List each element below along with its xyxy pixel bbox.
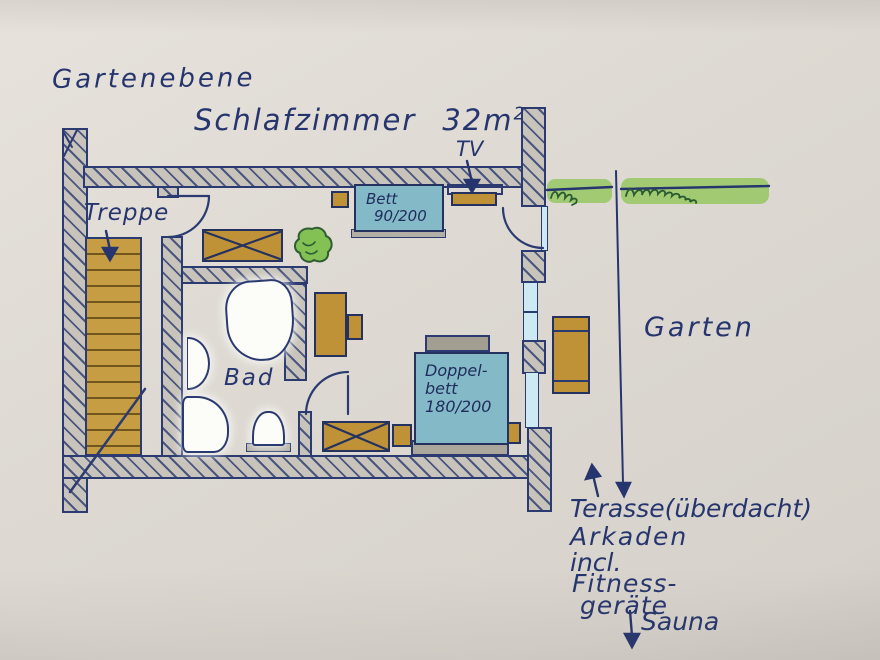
window-2 [525,372,539,428]
sauna-arrow-head [625,634,639,647]
plan-title: Gartenebene [52,63,256,95]
bathroom-door-pier [298,411,312,457]
annotation-sauna: Sauna [641,607,719,636]
room-area: 32m2 [442,103,526,137]
window-1 [523,282,538,341]
bath-label: Bad [224,365,274,391]
right-wall-pier-1 [521,250,546,283]
hedge-band-2 [621,178,769,204]
double-bed-label-line1: Doppel- [425,362,507,380]
bench-chest [322,421,390,452]
right-wall-pier-2 [522,340,546,374]
terrace-door-glazing [541,206,548,251]
desk [314,292,347,357]
hedge-scribble-1 [551,192,577,205]
desk-chair [347,314,363,340]
bathtub [182,396,229,453]
terrace-boundary-line [616,171,623,484]
right-wall-bottom-column [527,427,552,512]
hedge-scribble-2 [626,190,696,204]
staircase [85,237,142,456]
sink [187,337,210,390]
annotation-arcades: Arkaden [570,522,688,551]
wardrobe [202,229,283,262]
double-bed-headboard [425,335,490,352]
bathroom-door-arc [306,372,348,414]
bottom-outer-wall [62,455,551,479]
tv-unit [451,192,497,206]
hedge [547,178,769,205]
single-bed: Bett 90/200 [354,184,444,232]
floor-plan-sketch: Bett 90/200 Doppel- bett 180/200 [0,0,880,660]
single-bed-label-line1: Bett [366,191,442,208]
plant-icon [295,228,332,262]
terrace-up-arrow-shaft [593,475,598,496]
toilet [252,411,285,446]
terrace-lounger [552,316,590,394]
double-bed-label-line3: 180/200 [425,398,507,416]
stair-partition-wall [161,236,183,457]
annotation-terrace: Terasse(überdacht) [570,494,812,523]
hedge-band-1 [547,179,612,203]
hedge-line [547,186,769,190]
double-bed-label-line2: bett [425,380,507,398]
terrace-door-arc [503,208,543,248]
nightstand-single [331,191,349,208]
nightstand-double-left [392,424,412,447]
garden-label: Garten [644,312,755,343]
entry-door-stub [157,186,179,198]
double-bed: Doppel- bett 180/200 [414,352,509,445]
stairs-label: Treppe [84,200,169,226]
room-title: Schlafzimmer32m2 [194,103,527,137]
single-bed-label-line2: 90/200 [366,208,442,225]
terrace-up-arrow-head [586,465,600,479]
tv-label: TV [456,137,483,161]
room-name: Schlafzimmer [194,103,416,137]
